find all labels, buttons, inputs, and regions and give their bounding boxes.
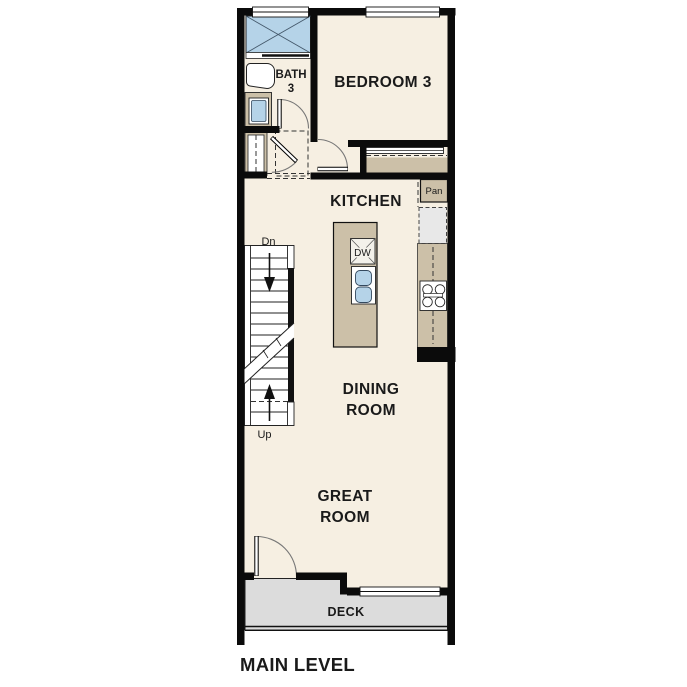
- wall-counter-end: [417, 347, 456, 362]
- island-sink-basin-1: [356, 271, 372, 286]
- wall-kitchen-top: [311, 173, 448, 180]
- pantry-label: Pan: [426, 186, 443, 197]
- stairs-down-label: Dn: [261, 236, 275, 248]
- wall-bath-bottom: [237, 126, 280, 133]
- staircase: Dn Up: [243, 236, 294, 441]
- range-control-strip: [424, 294, 443, 298]
- plan-title: MAIN LEVEL: [240, 654, 355, 675]
- great-label-line1: GREAT: [317, 488, 372, 505]
- toilet: [246, 64, 274, 89]
- bath3-label-line2: 3: [288, 83, 294, 95]
- wall-hall-stub: [244, 172, 267, 179]
- stair-left-stringer: [245, 246, 251, 426]
- wall-greatroom-bottom: [296, 573, 347, 581]
- wall-right: [448, 8, 456, 645]
- stair-rail-top: [288, 246, 295, 269]
- great-label-line2: ROOM: [320, 509, 370, 526]
- floor-plan-page: BATH 3 BEDROOM 3 Pan: [0, 0, 687, 687]
- bedroom3-label: BEDROOM 3: [334, 74, 431, 91]
- floor-plan-drawing: BATH 3 BEDROOM 3 Pan: [0, 0, 687, 687]
- bedroom3-closet-shelf: [366, 158, 448, 175]
- wall-step: [340, 573, 347, 595]
- wall-bath-bedroom-divider: [311, 8, 318, 142]
- dining-label-line1: DINING: [343, 381, 400, 398]
- dishwasher-label: DW: [354, 248, 371, 259]
- wall-greatroom-bottom-stub: [244, 573, 254, 581]
- vanity-sink-basin: [252, 101, 267, 122]
- wall-closet-stub: [360, 143, 367, 176]
- stairs-up-label: Up: [257, 429, 271, 441]
- bath3-label-line1: BATH: [275, 69, 306, 81]
- refrigerator: [419, 208, 447, 244]
- island-sink-basin-2: [356, 287, 372, 303]
- deck-label: DECK: [327, 605, 364, 619]
- dining-label-line2: ROOM: [346, 402, 396, 419]
- wall-left: [237, 8, 245, 645]
- kitchen-label: KITCHEN: [330, 193, 402, 210]
- stair-rail-bottom: [288, 402, 295, 426]
